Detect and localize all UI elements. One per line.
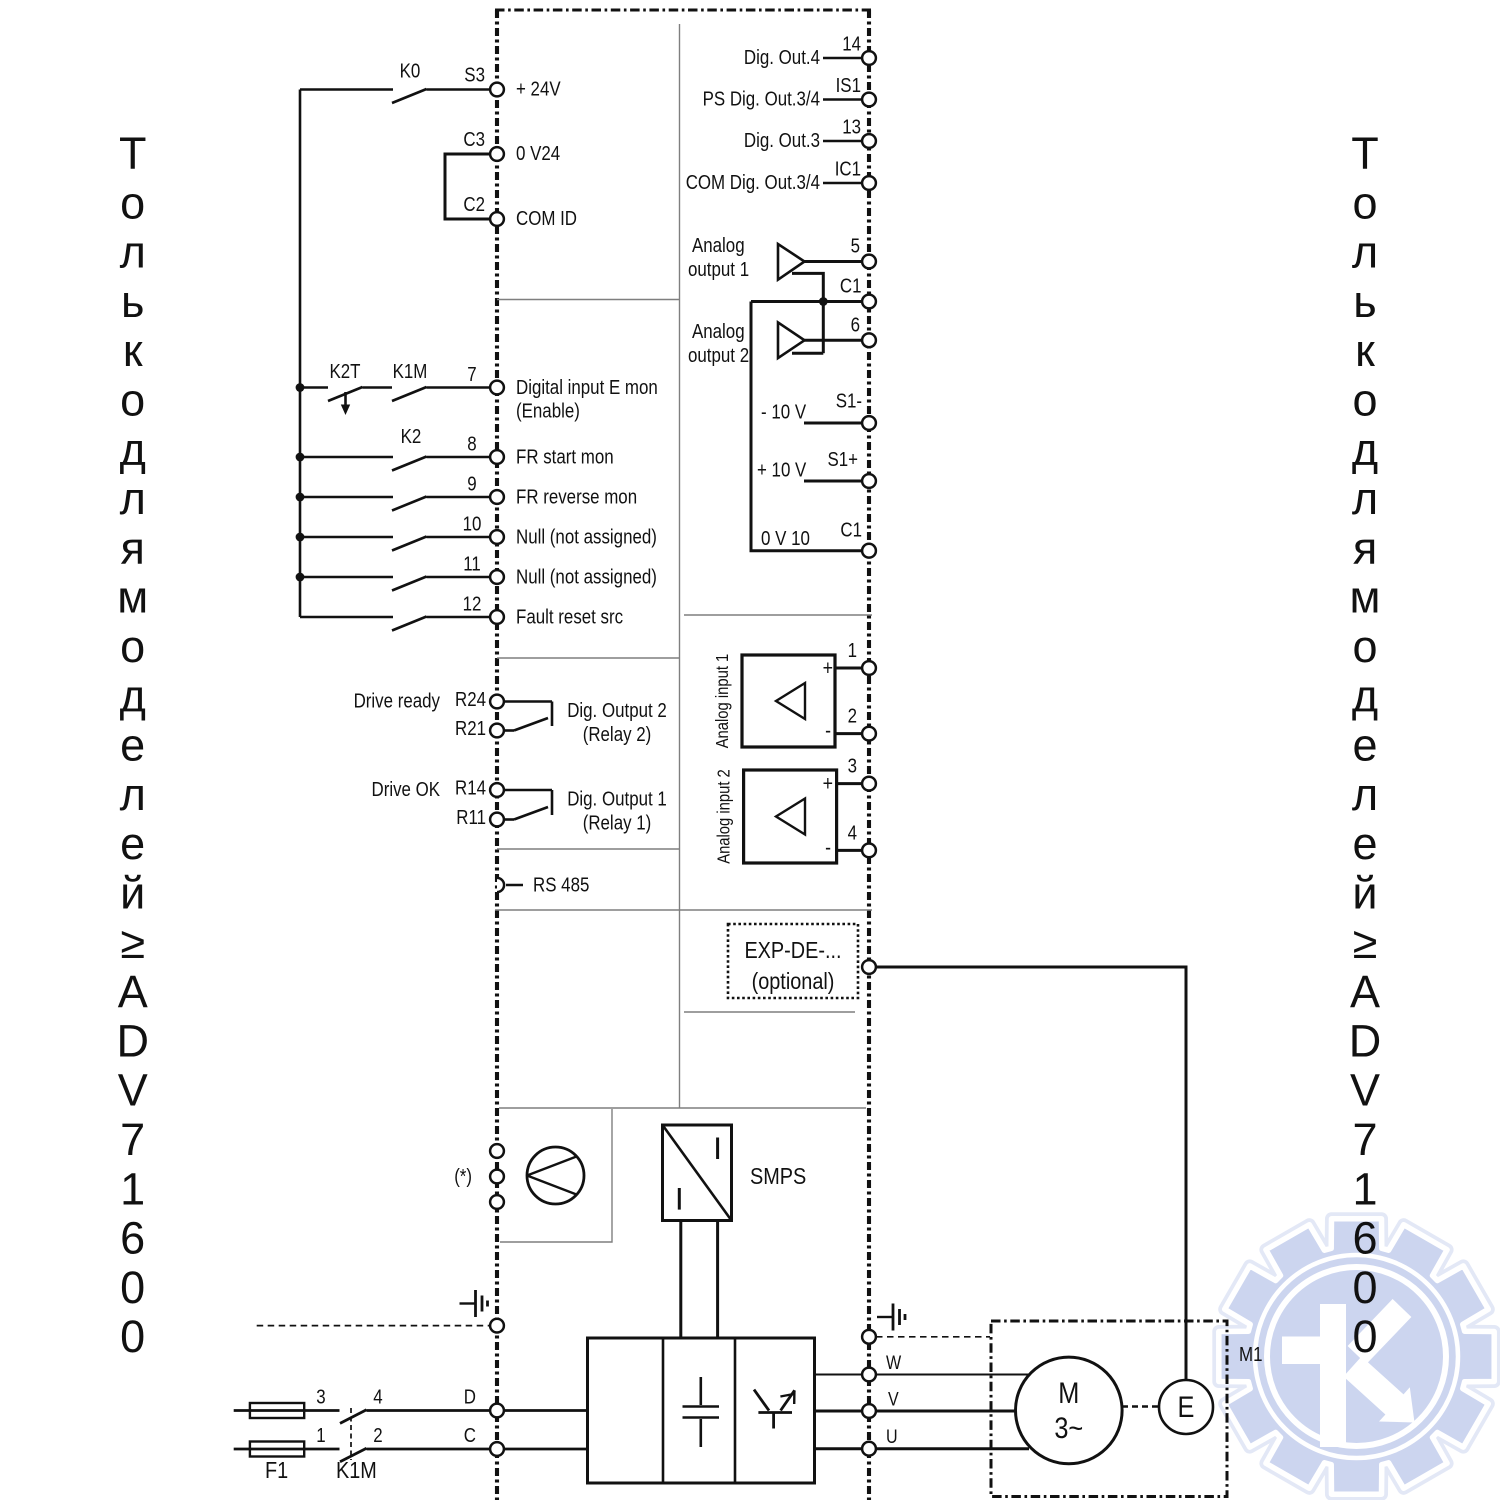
svg-text:м: м <box>117 572 148 623</box>
svg-text:D: D <box>116 1015 149 1066</box>
svg-text:о: о <box>120 621 145 672</box>
svg-text:C3: C3 <box>463 129 485 151</box>
svg-text:FR start mon: FR start mon <box>516 447 614 469</box>
svg-text:(Enable): (Enable) <box>516 401 580 423</box>
svg-text:к: к <box>123 325 143 376</box>
svg-text:д: д <box>120 424 146 475</box>
svg-text:о: о <box>120 177 145 228</box>
svg-text:1: 1 <box>848 640 857 662</box>
svg-text:1: 1 <box>120 1163 145 1214</box>
svg-text:M: M <box>1058 1377 1079 1410</box>
svg-text:13: 13 <box>842 117 861 139</box>
svg-text:е: е <box>1352 720 1377 771</box>
svg-text:Drive ready: Drive ready <box>354 691 440 713</box>
svg-text:K1M: K1M <box>393 361 428 383</box>
svg-text:л: л <box>1352 473 1378 524</box>
svg-text:0 V24: 0 V24 <box>516 143 560 165</box>
svg-text:D: D <box>464 1387 476 1409</box>
svg-text:4: 4 <box>373 1387 382 1409</box>
svg-text:я: я <box>1353 522 1377 573</box>
svg-text:4: 4 <box>848 822 857 844</box>
svg-text:л: л <box>1352 769 1378 820</box>
svg-text:л: л <box>120 769 146 820</box>
svg-text:о: о <box>120 375 145 426</box>
svg-text:EXP-DE-...: EXP-DE-... <box>744 937 841 963</box>
svg-text:(Relay 1): (Relay 1) <box>583 813 652 835</box>
svg-text:6: 6 <box>851 315 860 337</box>
svg-text:8: 8 <box>467 434 476 456</box>
svg-text:R21: R21 <box>455 718 486 740</box>
svg-text:л: л <box>1352 227 1378 278</box>
svg-text:д: д <box>120 670 146 721</box>
svg-text:Analog: Analog <box>692 321 745 343</box>
svg-text:е: е <box>120 818 145 869</box>
svg-text:5: 5 <box>851 236 860 258</box>
svg-text:W: W <box>886 1353 901 1374</box>
svg-text:й: й <box>120 868 145 919</box>
svg-text:S3: S3 <box>464 65 485 87</box>
svg-text:Analog input 2: Analog input 2 <box>714 769 734 864</box>
svg-text:+: + <box>823 657 833 680</box>
svg-text:0: 0 <box>120 1311 145 1362</box>
svg-text:RS 485: RS 485 <box>533 875 589 897</box>
svg-text:C1: C1 <box>840 520 862 542</box>
svg-text:K1M: K1M <box>336 1457 377 1483</box>
svg-text:S1+: S1+ <box>828 449 859 471</box>
svg-text:й: й <box>1352 868 1377 919</box>
svg-text:3~: 3~ <box>1054 1412 1083 1445</box>
svg-text:C2: C2 <box>463 194 485 216</box>
svg-text:COM ID: COM ID <box>516 208 577 230</box>
svg-text:12: 12 <box>463 594 482 616</box>
svg-text:(*): (*) <box>454 1166 472 1188</box>
svg-text:11: 11 <box>463 554 481 576</box>
svg-text:≥: ≥ <box>120 917 145 968</box>
svg-text:M1: M1 <box>1239 1344 1263 1366</box>
svg-text:output 1: output 1 <box>688 259 749 281</box>
svg-text:K2: K2 <box>401 426 422 448</box>
svg-text:IC1: IC1 <box>835 159 861 181</box>
svg-text:Dig. Out.4: Dig. Out.4 <box>744 47 820 69</box>
svg-text:-: - <box>825 720 831 743</box>
svg-text:V: V <box>1350 1065 1380 1116</box>
svg-text:FR reverse mon: FR reverse mon <box>516 487 637 509</box>
svg-text:Т: Т <box>119 128 147 179</box>
svg-text:-: - <box>825 836 831 859</box>
svg-text:2: 2 <box>848 706 857 728</box>
svg-text:ь: ь <box>1353 276 1376 327</box>
svg-text:R14: R14 <box>455 778 486 800</box>
svg-text:+: + <box>823 773 833 796</box>
svg-text:A: A <box>118 966 148 1017</box>
svg-text:R11: R11 <box>456 807 486 829</box>
svg-text:0 V 10: 0 V 10 <box>761 528 810 550</box>
svg-text:COM Dig. Out.3/4: COM Dig. Out.3/4 <box>686 172 820 194</box>
svg-text:+ 10 V: + 10 V <box>757 460 807 482</box>
svg-text:Dig. Output 2: Dig. Output 2 <box>567 700 667 722</box>
svg-text:о: о <box>1352 621 1377 672</box>
svg-text:д: д <box>1352 424 1378 475</box>
svg-text:3: 3 <box>316 1387 325 1409</box>
svg-text:(Relay 2): (Relay 2) <box>583 724 652 746</box>
svg-text:F1: F1 <box>265 1457 288 1483</box>
svg-text:E: E <box>1178 1391 1195 1424</box>
svg-text:Analog: Analog <box>692 235 745 257</box>
svg-text:V: V <box>888 1390 899 1411</box>
svg-text:output 2: output 2 <box>688 345 749 367</box>
svg-text:6: 6 <box>120 1213 145 1264</box>
svg-text:S1-: S1- <box>836 391 862 413</box>
svg-text:14: 14 <box>842 34 861 56</box>
svg-text:Null (not assigned): Null (not assigned) <box>516 567 657 589</box>
svg-text:IS1: IS1 <box>836 75 861 97</box>
svg-text:10: 10 <box>463 514 482 536</box>
svg-text:6: 6 <box>1352 1213 1377 1264</box>
svg-text:C1: C1 <box>840 275 862 297</box>
svg-text:7: 7 <box>120 1114 145 1165</box>
svg-text:Dig. Output 1: Dig. Output 1 <box>567 789 667 811</box>
svg-text:0: 0 <box>1352 1262 1377 1313</box>
svg-text:м: м <box>1350 572 1381 623</box>
svg-text:е: е <box>1352 818 1377 869</box>
svg-text:Fault reset src: Fault reset src <box>516 607 623 629</box>
svg-text:C: C <box>464 1425 476 1447</box>
svg-text:ь: ь <box>121 276 144 327</box>
svg-text:U: U <box>886 1427 898 1448</box>
svg-text:7: 7 <box>467 364 476 386</box>
svg-text:3: 3 <box>848 756 857 778</box>
svg-text:+ 24V: + 24V <box>516 79 561 101</box>
svg-text:1: 1 <box>1352 1163 1377 1214</box>
svg-text:к: к <box>1355 325 1375 376</box>
svg-text:- 10 V: - 10 V <box>761 402 807 424</box>
svg-text:е: е <box>120 720 145 771</box>
svg-text:Т: Т <box>1351 128 1379 179</box>
svg-text:PS Dig. Out.3/4: PS Dig. Out.3/4 <box>703 89 820 111</box>
svg-text:7: 7 <box>1352 1114 1377 1165</box>
svg-text:9: 9 <box>467 474 476 496</box>
svg-text:Dig. Out.3: Dig. Out.3 <box>744 130 820 152</box>
svg-text:R24: R24 <box>455 689 486 711</box>
svg-text:≥: ≥ <box>1353 917 1378 968</box>
svg-text:D: D <box>1349 1015 1382 1066</box>
svg-text:0: 0 <box>120 1262 145 1313</box>
svg-text:2: 2 <box>373 1425 382 1447</box>
svg-text:Digital input E mon: Digital input E mon <box>516 377 658 399</box>
svg-text:SMPS: SMPS <box>750 1163 806 1189</box>
svg-text:Drive OK: Drive OK <box>372 779 441 801</box>
svg-text:V: V <box>118 1065 148 1116</box>
svg-text:л: л <box>120 473 146 524</box>
svg-text:A: A <box>1350 966 1380 1017</box>
svg-text:1: 1 <box>316 1425 325 1447</box>
svg-text:д: д <box>1352 670 1378 721</box>
svg-text:K0: K0 <box>400 61 421 83</box>
svg-text:я: я <box>121 522 145 573</box>
svg-text:о: о <box>1352 375 1377 426</box>
svg-text:Null (not assigned): Null (not assigned) <box>516 527 657 549</box>
svg-text:0: 0 <box>1352 1311 1377 1362</box>
svg-text:л: л <box>120 227 146 278</box>
svg-text:(optional): (optional) <box>752 968 835 994</box>
svg-text:о: о <box>1352 177 1377 228</box>
svg-text:K2T: K2T <box>330 361 361 383</box>
svg-text:Analog input 1: Analog input 1 <box>712 654 732 749</box>
